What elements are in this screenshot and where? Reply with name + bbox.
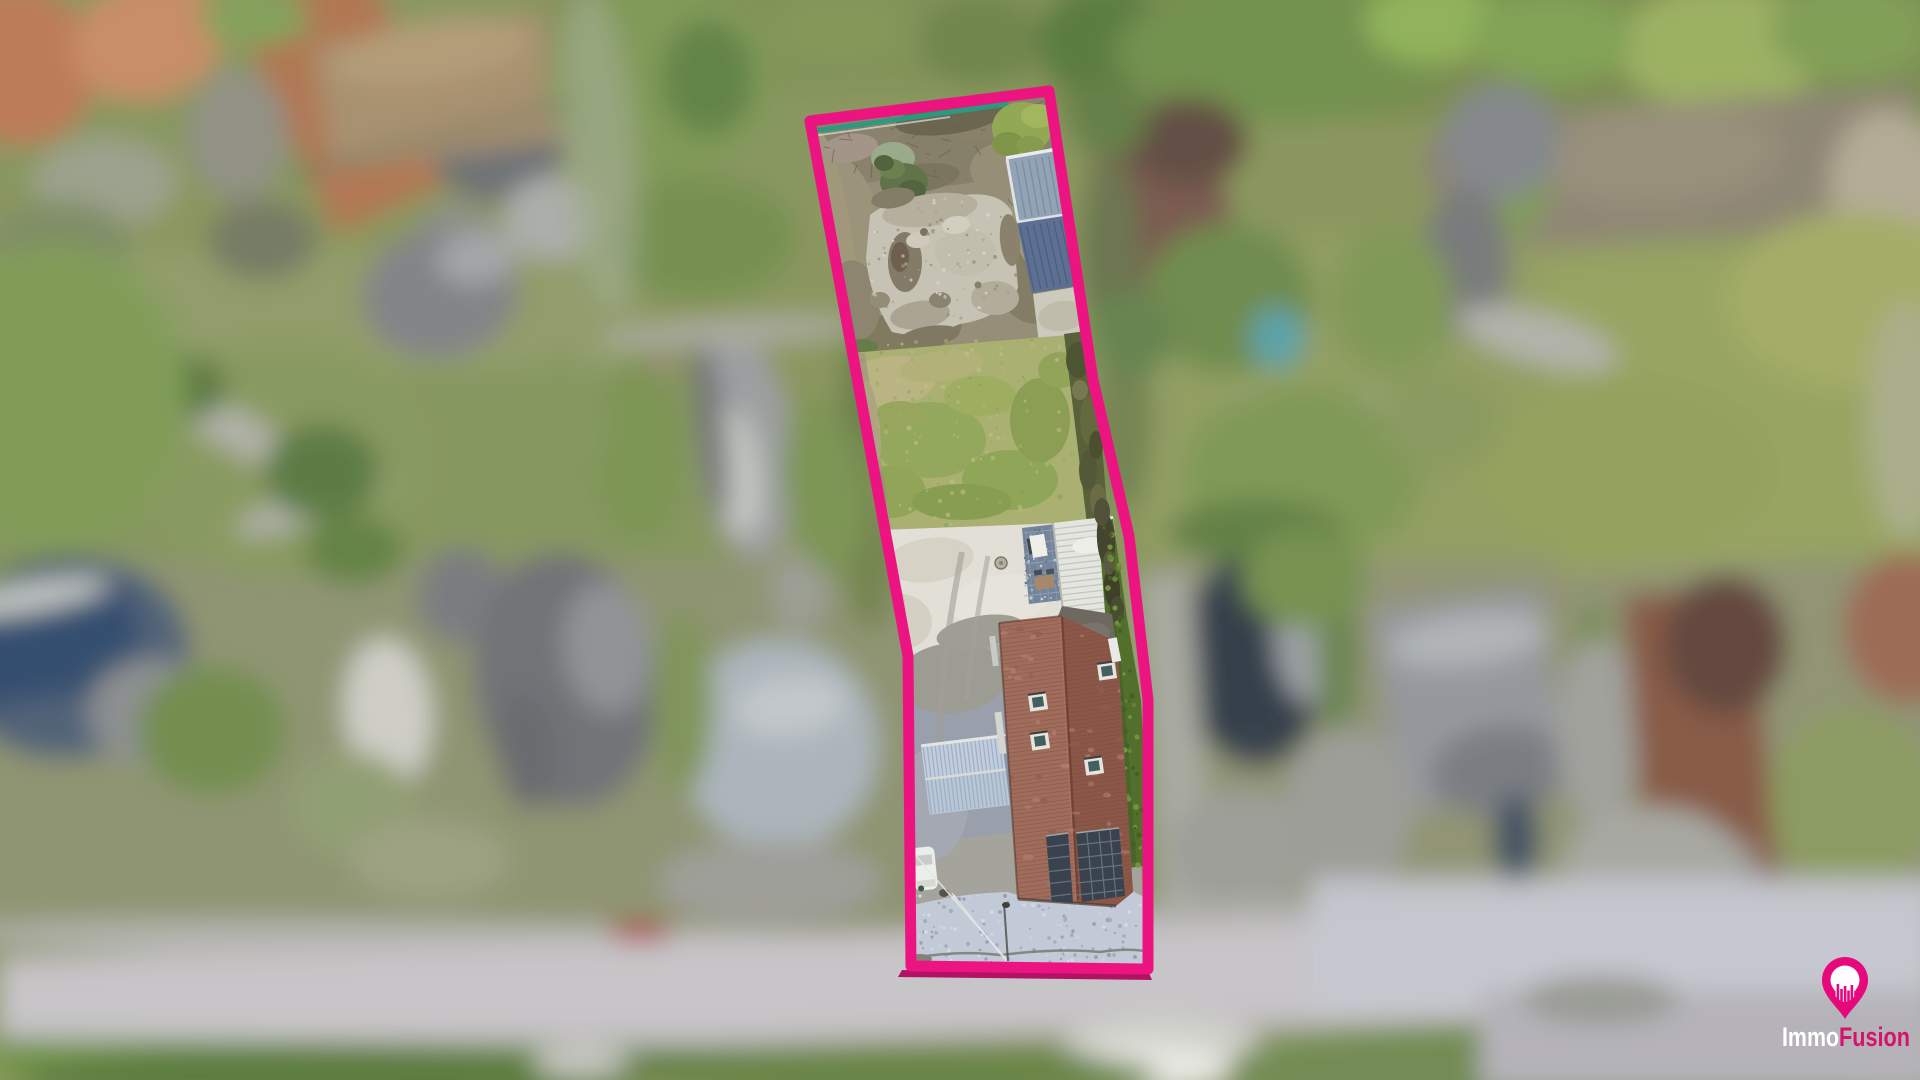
svg-text:Fusion: Fusion: [1839, 1022, 1910, 1052]
svg-text:Immo: Immo: [1782, 1022, 1839, 1052]
